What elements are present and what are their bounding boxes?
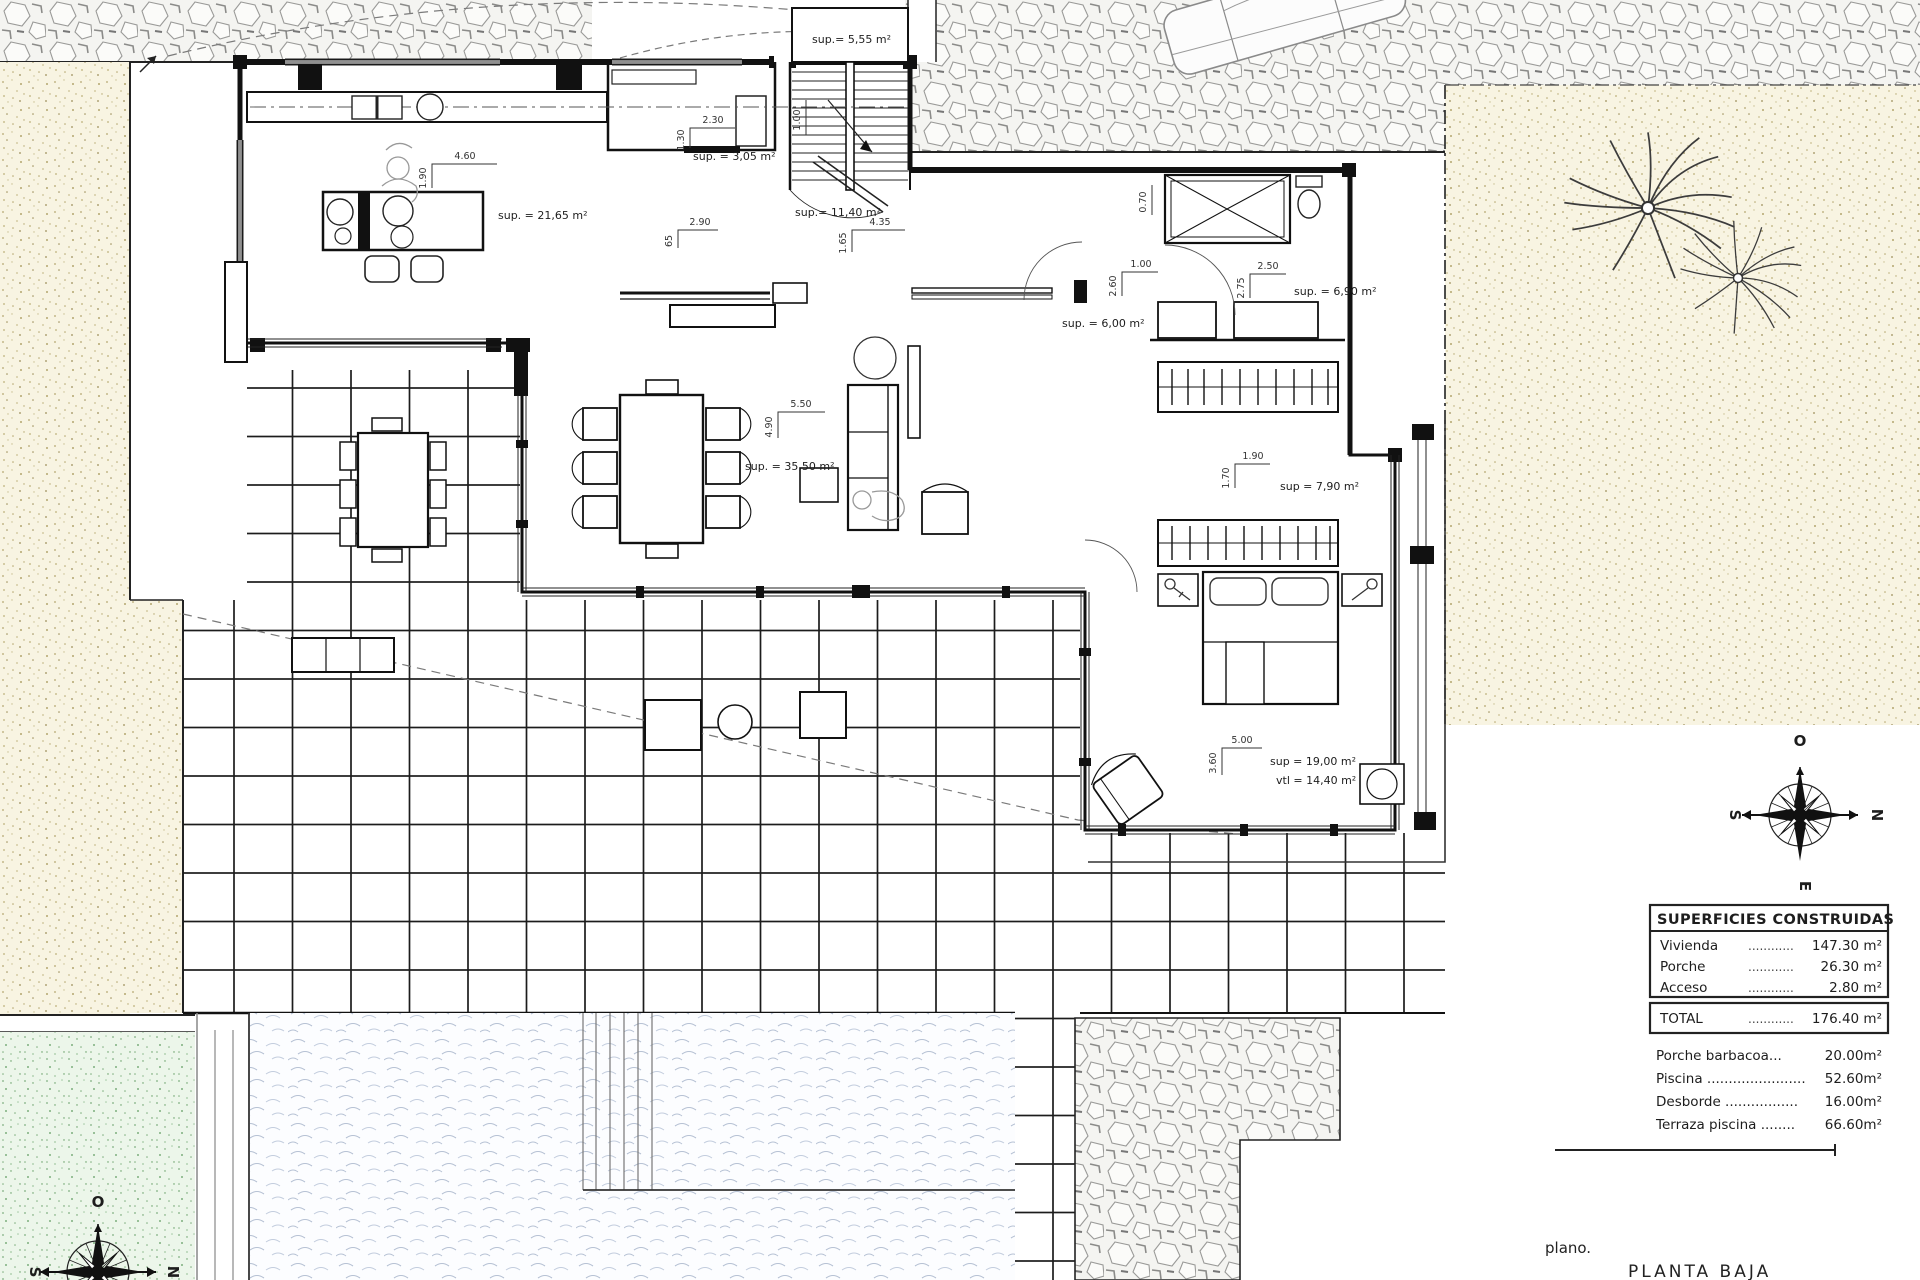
label-bath: sup. = 6,90 m²: [1294, 285, 1377, 298]
svg-text:O: O: [92, 1193, 105, 1211]
svg-text:52.60m²: 52.60m²: [1825, 1071, 1882, 1087]
svg-text:Porche: Porche: [1660, 959, 1705, 975]
svg-text:66.60m²: 66.60m²: [1825, 1117, 1882, 1133]
svg-text:Terraza piscina ........: Terraza piscina ........: [1655, 1117, 1795, 1133]
areas-table: SUPERFICIES CONSTRUIDAS Vivienda .......…: [1555, 905, 1894, 1156]
svg-text:2.60: 2.60: [1108, 275, 1119, 296]
svg-text:1.90: 1.90: [418, 167, 429, 188]
svg-text:1.90: 1.90: [1242, 451, 1263, 462]
svg-text:Porche barbacoa...: Porche barbacoa...: [1656, 1048, 1782, 1064]
svg-text:............: ............: [1748, 1012, 1794, 1026]
floor-plan-sheet: sup.= 5,55 m² sup. = 3,05 m² sup.= 11,40…: [0, 0, 1920, 1280]
garden-left-strip: [0, 62, 183, 1015]
svg-text:65: 65: [664, 235, 675, 247]
svg-text:16.00m²: 16.00m²: [1825, 1094, 1882, 1110]
svg-text:2.75: 2.75: [1236, 277, 1247, 298]
svg-text:26.30 m²: 26.30 m²: [1820, 959, 1882, 975]
compass-rose-right: O N S E: [1726, 732, 1886, 891]
svg-text:E: E: [1796, 881, 1814, 891]
label-stairs: sup.= 5,55 m²: [812, 33, 891, 46]
label-hall: sup.= 11,40 m²: [795, 206, 881, 219]
svg-text:N: N: [164, 1266, 182, 1279]
svg-text:S: S: [26, 1267, 44, 1278]
svg-text:4.35: 4.35: [869, 217, 890, 228]
svg-text:2.50: 2.50: [1257, 261, 1278, 272]
svg-text:1.30: 1.30: [676, 129, 687, 150]
pool-water: [250, 1013, 1015, 1280]
svg-text:............: ............: [1748, 981, 1794, 995]
wardrobe-lower: [1158, 520, 1338, 566]
patio-skylight: [1165, 175, 1290, 243]
svg-text:3.60: 3.60: [1208, 752, 1219, 773]
bedroom-side-table: [1360, 764, 1404, 804]
label-kitchen: sup. = 21,65 m²: [498, 209, 588, 222]
label-pantry: sup. = 3,05 m²: [693, 150, 776, 163]
plan-label: plano.: [1545, 1239, 1591, 1257]
areas-table-title: SUPERFICIES CONSTRUIDAS: [1657, 912, 1894, 928]
svg-text:20.00m²: 20.00m²: [1825, 1048, 1882, 1064]
svg-text:Desborde .................: Desborde .................: [1656, 1094, 1798, 1110]
floor-plan-drawing: sup.= 5,55 m² sup. = 3,05 m² sup.= 11,40…: [0, 0, 1920, 1280]
svg-text:O: O: [1794, 732, 1807, 750]
title-block: plano. PLANTA BAJA: [1545, 1239, 1771, 1280]
svg-text:1.00: 1.00: [1130, 259, 1151, 270]
wardrobe-upper: [1158, 362, 1338, 412]
svg-text:1.00: 1.00: [792, 109, 803, 130]
svg-text:2.80 m²: 2.80 m²: [1829, 980, 1882, 996]
svg-text:............: ............: [1748, 939, 1794, 953]
svg-text:TOTAL: TOTAL: [1659, 1011, 1703, 1027]
svg-text:1.70: 1.70: [1221, 467, 1232, 488]
svg-text:............: ............: [1748, 960, 1794, 974]
label-bedroom: sup = 19,00 m²: [1270, 755, 1356, 768]
svg-text:Piscina ......................: Piscina .......................: [1656, 1071, 1806, 1087]
toilet: [1296, 176, 1322, 218]
svg-text:N: N: [1868, 809, 1886, 822]
label-living: sup. = 35,50 m²: [745, 460, 835, 473]
svg-text:176.40 m²: 176.40 m²: [1812, 1011, 1882, 1027]
svg-text:0.70: 0.70: [1138, 191, 1149, 212]
svg-text:5.00: 5.00: [1231, 735, 1252, 746]
svg-text:147.30 m²: 147.30 m²: [1812, 938, 1882, 954]
svg-text:1.65: 1.65: [838, 232, 849, 253]
svg-text:2.90: 2.90: [689, 217, 710, 228]
svg-text:Acceso: Acceso: [1660, 980, 1707, 996]
svg-text:5.50: 5.50: [790, 399, 811, 410]
site-paving-bottom: [1075, 1018, 1340, 1280]
label-dressing: sup = 7,90 m²: [1280, 480, 1359, 493]
garden-right: [1445, 85, 1920, 725]
svg-text:Vivienda: Vivienda: [1660, 938, 1718, 954]
label-bedroom-vtl: vtl = 14,40 m²: [1276, 774, 1356, 787]
svg-text:2.30: 2.30: [702, 115, 723, 126]
label-corridor: sup. = 6,00 m²: [1062, 317, 1145, 330]
areas-extra-list: Porche barbacoa... 20.00m² Piscina .....…: [1655, 1048, 1882, 1133]
svg-text:4.60: 4.60: [454, 151, 475, 162]
svg-text:4.90: 4.90: [764, 416, 775, 437]
site-paving-top-left: [0, 0, 592, 62]
svg-text:S: S: [1726, 810, 1744, 821]
plan-title: PLANTA BAJA: [1628, 1262, 1771, 1280]
